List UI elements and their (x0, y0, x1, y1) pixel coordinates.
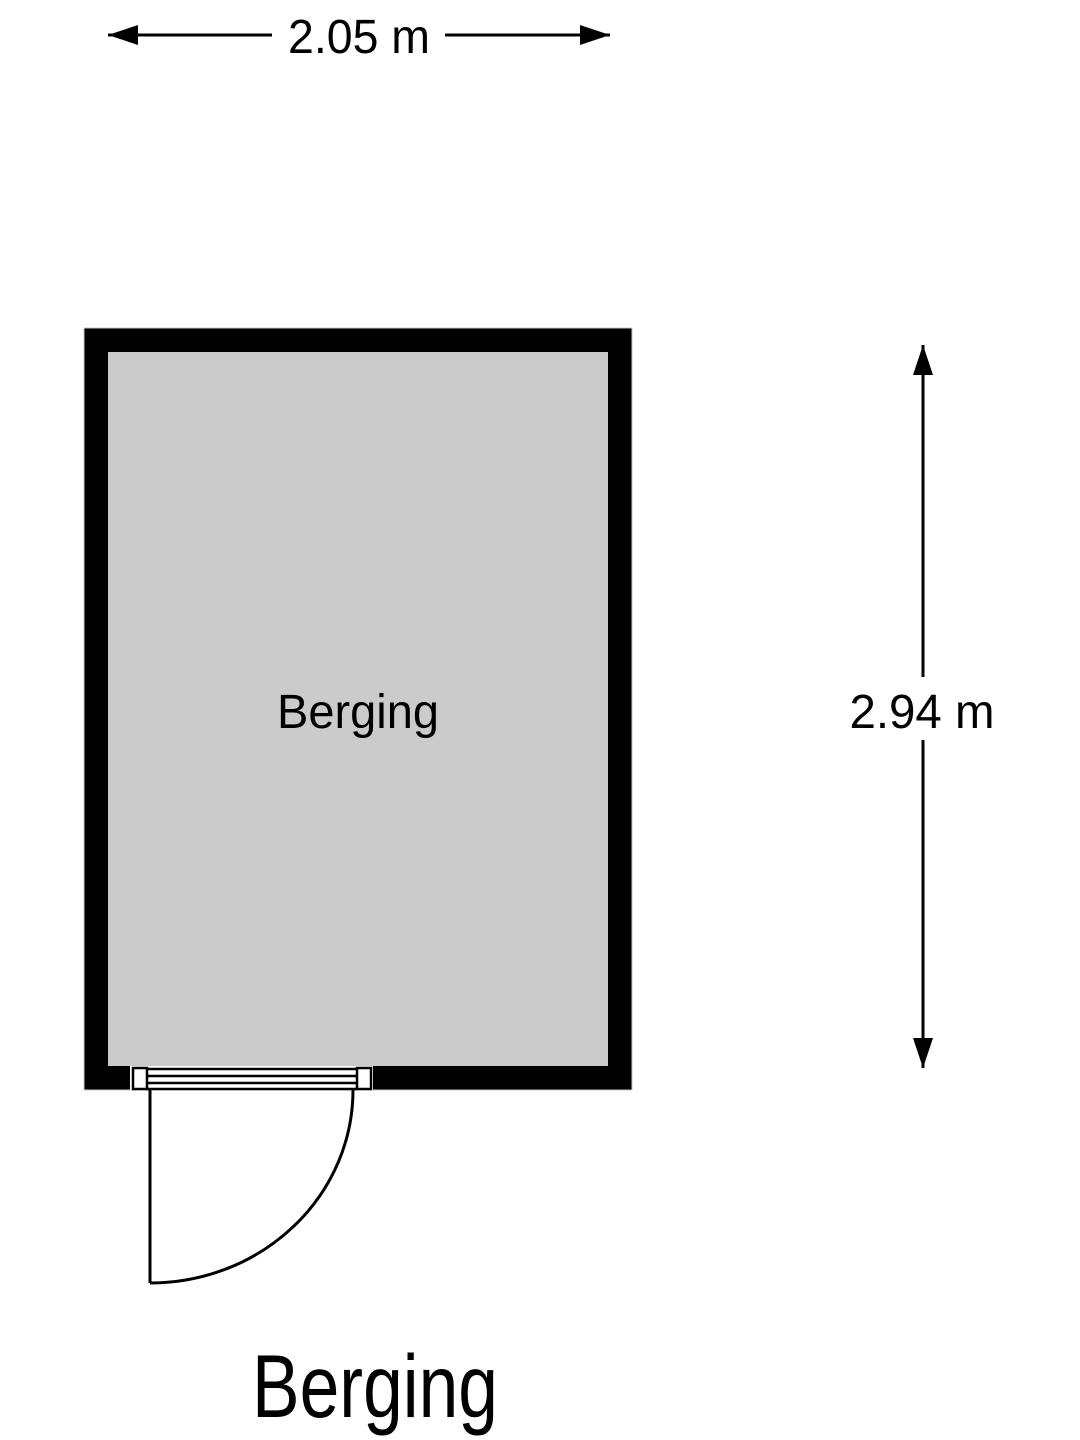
door-swing-arc (150, 1090, 353, 1283)
height-dimension-arrow-down-icon (913, 1038, 933, 1068)
width-dimension-arrow-right-icon (580, 25, 610, 45)
height-dimension: 2.94 m (850, 345, 995, 1068)
floorplan-canvas: 2.05 m Berging (0, 0, 1080, 1440)
height-dimension-arrow-up-icon (913, 345, 933, 375)
width-dimension-label: 2.05 m (288, 11, 430, 64)
width-dimension-arrow-left-icon (108, 25, 138, 45)
room-label: Berging (277, 686, 439, 739)
room: Berging (84, 328, 632, 1283)
width-dimension: 2.05 m (108, 11, 610, 64)
floorplan-caption: Berging (252, 1336, 498, 1436)
height-dimension-label: 2.94 m (850, 686, 995, 739)
door-jamb-left (133, 1068, 147, 1089)
floorplan-page: 2.05 m Berging (0, 0, 1080, 1440)
door-jamb-right (357, 1068, 371, 1089)
